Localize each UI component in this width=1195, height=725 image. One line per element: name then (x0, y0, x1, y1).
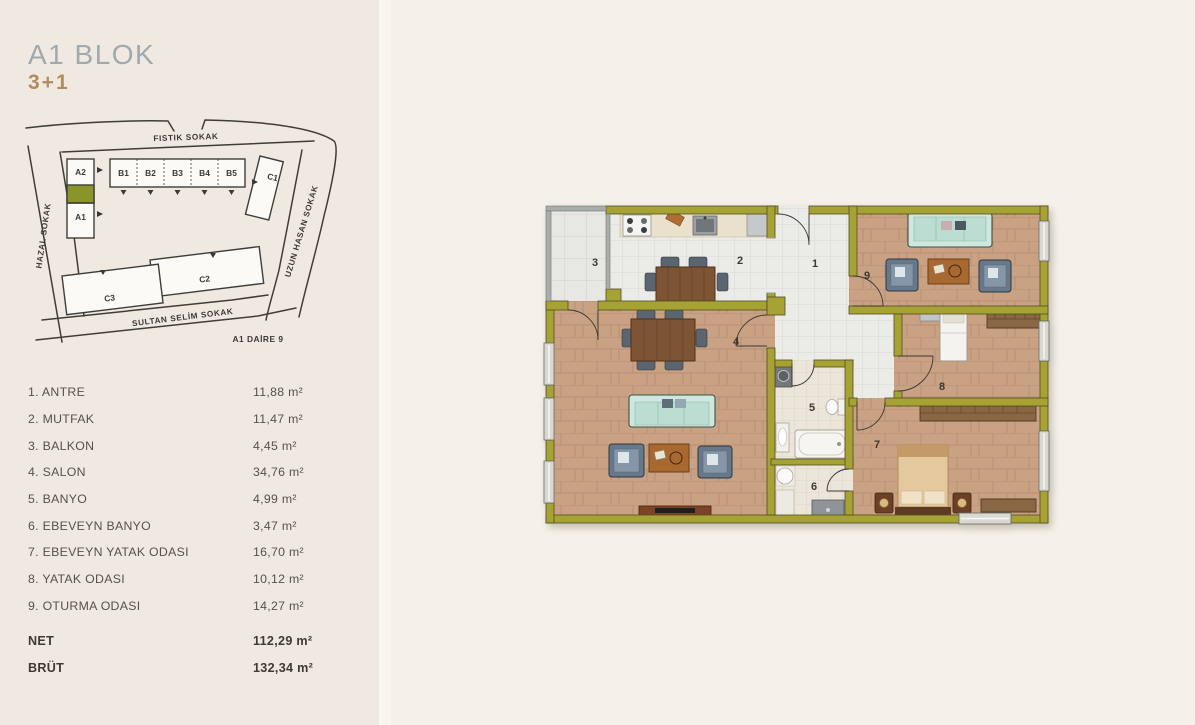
room-label: 9. OTURMA ODASI (28, 599, 253, 613)
unit-type-label: 3+1 (28, 71, 155, 95)
room-label: 3. BALKON (28, 439, 253, 453)
room-list-item: 2. MUTFAK11,47 m² (28, 406, 350, 433)
double-bed (895, 445, 951, 515)
salon-sofa (629, 395, 715, 427)
sitting-room-coffee-table (928, 259, 969, 284)
plan-label-antre: 1 (812, 258, 818, 270)
salon-armchair-left (609, 444, 644, 477)
block-label-c2: C2 (199, 273, 211, 284)
washer (775, 365, 792, 387)
room-list-item: 8. YATAK ODASI10,12 m² (28, 566, 350, 593)
room-label: 1. ANTRE (28, 385, 253, 399)
room-area: 14,27 m² (253, 599, 304, 613)
block-label-a2: A2 (75, 167, 86, 177)
plan-label-banyo: 5 (809, 402, 815, 414)
brut-label: BRÜT (28, 661, 253, 675)
room-list-item: 9. OTURMA ODASI14,27 m² (28, 593, 350, 620)
block-label-b4: B4 (199, 168, 210, 178)
room-area: 16,70 m² (253, 545, 304, 559)
bathtub (795, 430, 849, 458)
room-label: 6. EBEVEYN BANYO (28, 519, 253, 533)
brut-area: 132,34 m² (253, 661, 313, 675)
sitting-room-armchair-right (979, 260, 1011, 292)
room-label: 8. YATAK ODASI (28, 572, 253, 586)
ensuite-sink (776, 466, 795, 486)
plan-label-ebeveyn-yatak: 7 (874, 439, 880, 451)
brut-row: BRÜT132,34 m² (28, 654, 350, 681)
room-list-item: 6. EBEVEYN BANYO3,47 m² (28, 512, 350, 539)
room-list-item: 4. SALON34,76 m² (28, 459, 350, 486)
site-map: A2 A1 B1 B2 B3 B4 B5 C1 C2 C3 FISTIK SOK… (16, 114, 368, 356)
totals: NET112,29 m² BRÜT132,34 m² (28, 627, 350, 681)
block-label-b3: B3 (172, 168, 183, 178)
block-c1 (245, 156, 283, 220)
room-label: 2. MUTFAK (28, 412, 253, 426)
page-title: A1 BLOK (28, 40, 155, 69)
room-area: 11,88 m² (253, 385, 303, 399)
block-label-b5: B5 (226, 168, 237, 178)
nightstand-left (875, 493, 893, 513)
block-label-a1: A1 (75, 212, 86, 222)
sitting-room-sofa (908, 213, 992, 247)
room-list: 1. ANTRE11,88 m² 2. MUTFAK11,47 m² 3. BA… (28, 379, 350, 681)
block-label-b2: B2 (145, 168, 156, 178)
room-list-item: 7. EBEVEYN YATAK ODASI16,70 m² (28, 539, 350, 566)
room-area: 4,45 m² (253, 439, 297, 453)
net-label: NET (28, 634, 253, 648)
title-block: A1 BLOK 3+1 (28, 40, 155, 95)
plan-label-yatak: 8 (939, 381, 945, 393)
room-label: 4. SALON (28, 465, 253, 479)
plan-label-ebeveyn-banyo: 6 (811, 481, 817, 493)
kitchen-sink (693, 216, 717, 235)
plan-label-balkon: 3 (592, 257, 598, 269)
room-area: 10,12 m² (253, 572, 304, 586)
room-area: 11,47 m² (253, 412, 303, 426)
panel-divider (379, 0, 391, 725)
salon-armchair-right (698, 446, 732, 478)
salon-coffee-table (649, 444, 689, 472)
block-label-b1: B1 (118, 168, 129, 178)
plan-label-salon: 4 (733, 336, 740, 348)
site-blocks (62, 156, 283, 315)
net-area: 112,29 m² (253, 634, 312, 648)
room-list-item: 3. BALKON4,45 m² (28, 432, 350, 459)
plan-label-mutfak: 2 (737, 255, 743, 267)
street-label-left: HAZAL SOKAK (34, 202, 52, 269)
highlighted-unit (67, 185, 94, 203)
info-panel: A1 BLOK 3+1 (0, 0, 379, 725)
room-label: 7. EBEVEYN YATAK ODASI (28, 545, 253, 559)
room-area: 34,76 m² (253, 465, 304, 479)
site-map-caption: A1 DAİRE 9 (232, 334, 283, 344)
street-label-right: UZUN HASAN SOKAK (283, 184, 320, 278)
floor-plan: 1 2 3 4 5 6 7 8 9 (543, 193, 1063, 538)
room-area: 3,47 m² (253, 519, 297, 533)
nightstand-right (953, 493, 971, 513)
bathroom-sink (776, 423, 789, 452)
block-c3 (62, 264, 163, 315)
single-bed (940, 311, 967, 361)
toilet (826, 399, 846, 415)
sitting-room-armchair-left (886, 259, 918, 291)
master-wardrobe-bottom (981, 499, 1036, 512)
street-label-top: FISTIK SOKAK (153, 132, 218, 143)
salon-dining-table (622, 310, 707, 370)
room-list-item: 5. BANYO4,99 m² (28, 486, 350, 513)
room-area: 4,99 m² (253, 492, 297, 506)
room-label: 5. BANYO (28, 492, 253, 506)
stove (623, 215, 651, 236)
net-row: NET112,29 m² (28, 627, 350, 654)
block-label-c3: C3 (104, 292, 116, 303)
page: { "header": { "block_title": "A1 BLOK", … (0, 0, 1195, 725)
room-list-item: 1. ANTRE11,88 m² (28, 379, 350, 406)
master-wardrobe-top (920, 406, 1036, 421)
plan-label-oturma: 9 (864, 270, 870, 282)
block-c2 (150, 247, 264, 297)
